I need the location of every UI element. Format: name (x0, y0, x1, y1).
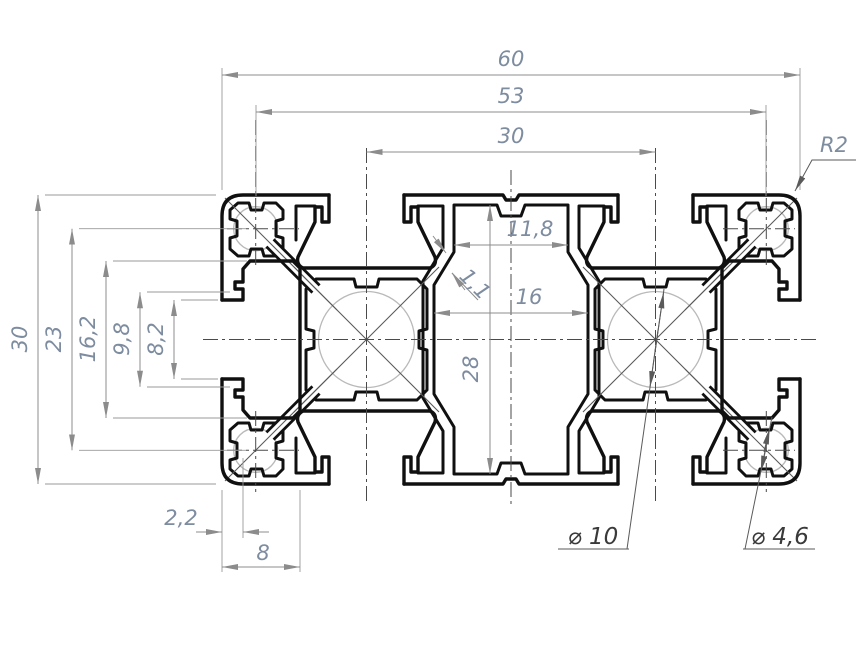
dim-cavity-height-label: 28 (459, 356, 483, 383)
dim-cavity-top-width-label: 11,8 (507, 217, 554, 241)
dim-overall-width-label: 60 (498, 47, 525, 71)
dim-wall-thickness-label: 1,1 (455, 264, 496, 305)
dim-corner-radius-label: R2 (820, 133, 848, 157)
dim-corner-span-label: 53 (498, 84, 525, 108)
dim-corner-hole-label: ⌀ 4,6 (751, 524, 809, 550)
dim-slot-depth-label: 8 (256, 541, 269, 565)
dim-core-hole-label: ⌀ 10 (568, 524, 618, 550)
dim-slot-lip-height-label: 9,8 (110, 322, 134, 355)
profile-drawing-svg: 60 53 30 R2 30 23 16,2 9,8 8,2 2,2 8 11,… (0, 0, 868, 650)
dim-corner-vspan-label: 23 (42, 326, 66, 353)
dim-slot-opening-label: 8,2 (144, 322, 168, 355)
dim-cavity-mid-width-label: 16 (516, 285, 543, 309)
dim-corner-radius-leader (795, 160, 856, 191)
dimensions: 60 53 30 R2 30 23 16,2 9,8 8,2 2,2 8 11,… (8, 47, 856, 572)
dim-slot-cavity-height-label: 16,2 (76, 316, 100, 363)
dim-core-span-label: 30 (498, 124, 525, 148)
dim-lip-depth-label: 2,2 (164, 506, 197, 530)
technical-drawing-canvas: 60 53 30 R2 30 23 16,2 9,8 8,2 2,2 8 11,… (0, 0, 868, 650)
dim-overall-height-label: 30 (8, 326, 32, 353)
